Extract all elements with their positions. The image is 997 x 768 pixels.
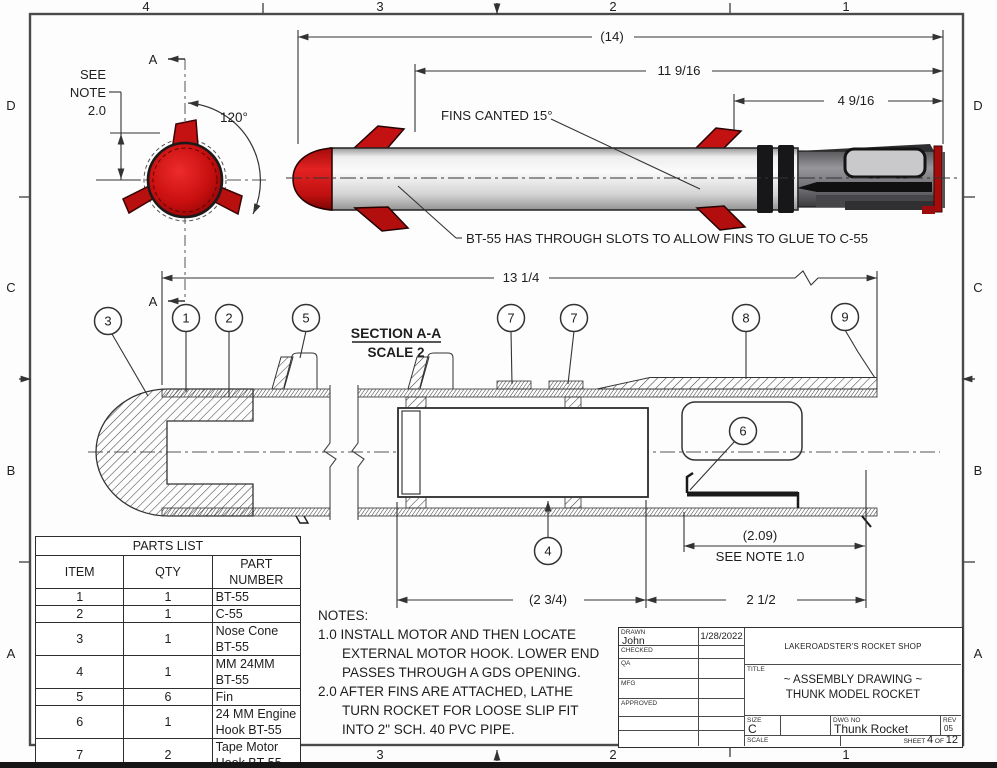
notes-block: NOTES: 1.0 INSTALL MOTOR AND THEN LOCATE… [318, 606, 618, 739]
zone-left-b: B [7, 463, 16, 478]
dim-body-length: 11 9/16 [657, 63, 700, 78]
body-tube [330, 148, 798, 210]
item-cell: 6 [36, 706, 124, 739]
note-line: 1.0 INSTALL MOTOR AND THEN LOCATE [318, 625, 618, 644]
thrust-ring [402, 411, 420, 494]
balloon-2-label: 2 [225, 311, 232, 326]
rear-band-1 [757, 145, 773, 213]
table-row: 11BT-55 [36, 589, 301, 606]
table-row: 41MM 24MM BT-55 [36, 656, 301, 689]
mfg-label: MFG [619, 679, 698, 687]
rev-cell: REV 05 [941, 716, 961, 736]
drawn-date: 1/28/2022 [699, 628, 745, 646]
bottom-dim-labels: (2.09) SEE NOTE 1.0 (2 3/4) 2 1/2 [529, 528, 804, 607]
note-line: PASSES THROUGH A GDS OPENING. [318, 663, 618, 682]
note-line: 2.0 AFTER FINS ARE ATTACHED, LATHE [318, 682, 618, 701]
screenshot-bottom-edge [0, 762, 997, 768]
bt55-slot-note: BT-55 HAS THROUGH SLOTS TO ALLOW FINS TO… [466, 231, 868, 246]
see-note-2-l2: NOTE [70, 85, 106, 100]
zone-top-1: 1 [842, 0, 849, 14]
drawing-title-line1: ~ ASSEMBLY DRAWING ~ [745, 673, 961, 688]
zone-right-b: B [974, 463, 983, 478]
item-cell: 2 [36, 606, 124, 623]
dim-aft-length: 2 1/2 [746, 592, 775, 607]
part-cell: Nose Cone BT-55 [212, 623, 300, 656]
title-label: TITLE [745, 665, 961, 673]
dwg-no-cell: DWG NO Thunk Rocket [831, 716, 941, 736]
fins-canted-note: FINS CANTED 15° [441, 108, 553, 123]
nose-cone-front-circle [148, 143, 222, 217]
balloon-6: 6 [730, 418, 757, 445]
balloon-9: 9 [832, 304, 859, 331]
balloon-3: 3 [95, 308, 122, 335]
part-cell: MM 24MM BT-55 [212, 656, 300, 689]
qty-cell: 1 [124, 706, 212, 739]
empty-cell [619, 717, 699, 731]
engine-hook-render [797, 182, 932, 192]
notes-heading: NOTES: [318, 606, 618, 625]
qa-label: QA [619, 659, 698, 667]
of-value: 12 [946, 734, 958, 746]
title-cell: TITLE ~ ASSEMBLY DRAWING ~ THUNK MODEL R… [745, 665, 961, 716]
empty-cell [699, 717, 745, 731]
dim-overall-length: (14) [600, 29, 623, 44]
rev-value: 05 [941, 724, 961, 733]
zone-left-c: C [6, 280, 15, 295]
section-label-top: A [149, 52, 158, 67]
table-row: 31Nose Cone BT-55 [36, 623, 301, 656]
empty-cell [699, 731, 745, 746]
table-row: 56Fin [36, 689, 301, 706]
see-note-2-label: SEE NOTE 2.0 [70, 67, 106, 118]
stiffener-wedge [597, 378, 877, 390]
balloon-4: 4 [535, 538, 562, 565]
balloon-7-a: 7 [498, 305, 525, 332]
item-cell: 3 [36, 623, 124, 656]
table-row: 21C-55 [36, 606, 301, 623]
balloon-7a-label: 7 [507, 311, 514, 326]
tail-cap [942, 152, 945, 208]
balloon-4-label: 4 [544, 544, 551, 559]
part-cell: 24 MM Engine Hook BT-55 [212, 706, 300, 739]
approved-label: APPROVED [619, 699, 698, 707]
qa-cell: QA [619, 659, 699, 679]
zone-right-a: A [974, 646, 983, 661]
side-view-render [286, 126, 958, 231]
fin-profiles [272, 353, 453, 389]
zone-top-3: 3 [376, 0, 383, 14]
parts-list-title: PARTS LIST [36, 537, 301, 556]
col-item: ITEM [36, 556, 124, 589]
engine-hook-slot [845, 149, 925, 177]
part-cell: BT-55 [212, 589, 300, 606]
zone-right-c: C [973, 280, 982, 295]
see-note-2-l1: SEE [80, 67, 106, 82]
balloon-8-label: 8 [742, 311, 749, 326]
motor-mount-tube [398, 408, 648, 497]
balloon-5: 5 [293, 305, 320, 332]
col-qty: QTY [124, 556, 212, 589]
fin-angle-label: 120° [220, 110, 248, 125]
qty-cell: 1 [124, 606, 212, 623]
approved-cell: APPROVED [619, 699, 699, 717]
balloon-7-b: 7 [561, 305, 588, 332]
parts-list-table: PARTS LIST ITEM QTY PART NUMBER 11BT-55 … [35, 536, 301, 768]
balloon-7b-label: 7 [570, 311, 577, 326]
col-part-number: PART NUMBER [212, 556, 300, 589]
balloon-1-label: 1 [182, 311, 189, 326]
item-cell: 4 [36, 656, 124, 689]
drawn-cell: DRAWN John [619, 628, 699, 646]
qty-cell: 1 [124, 623, 212, 656]
item-cell: 5 [36, 689, 124, 706]
section-label-bottom: A [149, 294, 158, 309]
balloon-5-label: 5 [302, 311, 309, 326]
rear-band-2 [778, 145, 794, 213]
qa-value [699, 659, 745, 679]
dwg-no-value: Thunk Rocket [831, 724, 940, 734]
nose-cone-side [293, 148, 332, 210]
balloon-2: 2 [216, 305, 243, 332]
zone-right-d: D [973, 98, 982, 113]
mfg-value [699, 679, 745, 699]
title-block: DRAWN John 1/28/2022 CHECKED QA MFG APPR… [618, 627, 963, 748]
rear-lower-step2 [845, 201, 934, 210]
qty-cell: 1 [124, 656, 212, 689]
part-cell: Fin [212, 689, 300, 706]
checked-value [699, 646, 745, 659]
balloon-9-label: 9 [841, 310, 848, 325]
zone-bottom-2: 2 [609, 747, 616, 762]
cage-cell [781, 716, 831, 736]
checked-label: CHECKED [619, 646, 698, 654]
sheet-info: SHEET 4 OF 12 [904, 734, 958, 746]
drawn-value: John [619, 636, 698, 646]
approved-value [699, 699, 745, 717]
zone-left-a: A [7, 646, 16, 661]
note-line: EXTERNAL MOTOR HOOK. LOWER END [318, 644, 618, 663]
zone-top-4: 4 [142, 0, 149, 14]
dim-motor-tube: (2 3/4) [529, 592, 567, 607]
drawing-sheet: 4 3 2 1 4 3 2 1 D C B A D C B A [0, 0, 997, 768]
dim-hook-length: (2.09) [743, 528, 777, 543]
dim-section-length: 13 1/4 [503, 270, 540, 285]
qty-cell: 6 [124, 689, 212, 706]
section-scale: SCALE 2 [367, 345, 424, 360]
tape-rings [497, 381, 583, 389]
company-name: LAKEROADSTER'S ROCKET SHOP [745, 628, 961, 665]
section-title: SECTION A-A [351, 325, 441, 341]
size-value: C [745, 724, 780, 734]
qty-cell: 1 [124, 589, 212, 606]
balloon-3-label: 3 [104, 314, 111, 329]
mfg-cell: MFG [619, 679, 699, 699]
dim-hook-note: SEE NOTE 1.0 [716, 549, 805, 564]
item-cell: 1 [36, 589, 124, 606]
see-note-2-l3: 2.0 [88, 103, 106, 118]
drawing-title-line2: THUNK MODEL ROCKET [745, 688, 961, 703]
dim-rear-length: 4 9/16 [838, 93, 875, 108]
zone-bottom-3: 3 [376, 747, 383, 762]
empty-cell [619, 731, 699, 746]
balloon-1: 1 [173, 305, 200, 332]
scale-cell: SCALE [745, 736, 841, 746]
front-view: A A 120° SEE NOTE 2.0 [70, 52, 268, 309]
tail-red-tab [922, 206, 935, 214]
sheet-value: 4 [927, 734, 933, 746]
balloon-6-label: 6 [739, 424, 746, 439]
note-line: INTO 2" SCH. 40 PVC PIPE. [318, 720, 618, 739]
zone-left-d: D [6, 98, 15, 113]
table-row: 6124 MM Engine Hook BT-55 [36, 706, 301, 739]
scale-label: SCALE [745, 736, 840, 744]
note-line: TURN ROCKET FOR LOOSE SLIP FIT [318, 701, 618, 720]
balloon-8: 8 [733, 305, 760, 332]
sheet-label: SHEET [904, 738, 926, 745]
zone-top-2: 2 [609, 0, 616, 14]
side-view-dim-labels: (14) 11 9/16 4 9/16 FINS CANTED 15° BT-5… [441, 29, 874, 246]
tail-red-ring [934, 146, 942, 212]
zone-bottom-1: 1 [842, 747, 849, 762]
size-cell: SIZE C [745, 716, 781, 736]
of-label: OF [935, 738, 944, 745]
rev-label: REV [941, 716, 961, 724]
checked-cell: CHECKED [619, 646, 699, 659]
part-cell: C-55 [212, 606, 300, 623]
